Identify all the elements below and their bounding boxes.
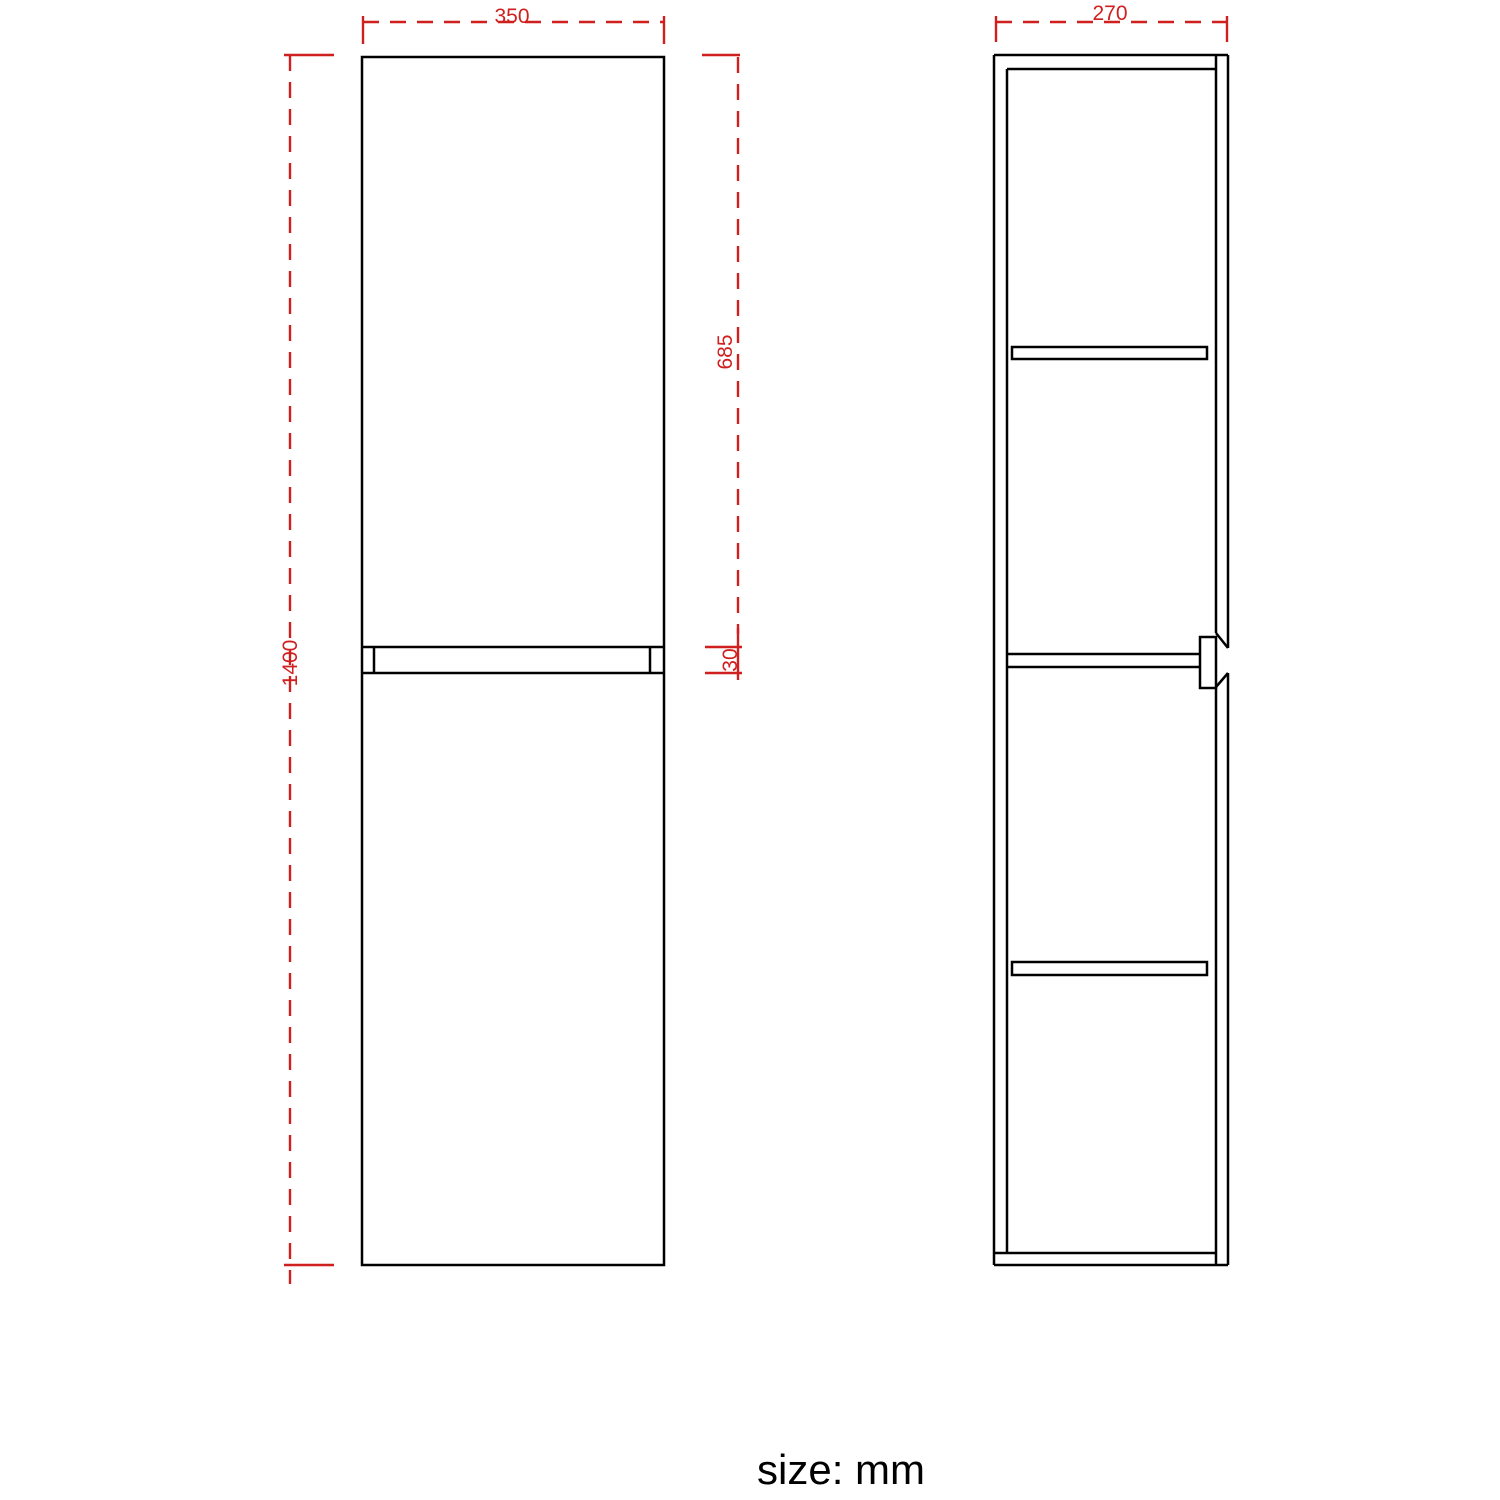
side-door-bottom-chamfer: [1216, 673, 1228, 687]
dim-width-label: 350: [494, 5, 529, 28]
side-handle-block: [1200, 637, 1216, 688]
dimension-labels: 350 1400 685 30 270: [279, 2, 1128, 686]
side-door-top-chamfer: [1216, 633, 1228, 648]
unit-label: size: mm: [757, 1446, 925, 1493]
dimension-lines: [284, 16, 1227, 1284]
dim-height-label: 1400: [279, 640, 302, 687]
dim-depth-label: 270: [1092, 2, 1127, 25]
side-lower-shelf: [1012, 962, 1207, 975]
side-view: [994, 55, 1228, 1265]
front-cabinet-outline: [362, 57, 664, 1265]
technical-drawing: 350 1400 685 30 270 size: mm: [0, 0, 1500, 1500]
side-upper-shelf: [1012, 347, 1207, 359]
dim-gap-label: 30: [719, 648, 742, 671]
dim-upper-door-label: 685: [714, 334, 737, 369]
front-view: [362, 57, 664, 1265]
